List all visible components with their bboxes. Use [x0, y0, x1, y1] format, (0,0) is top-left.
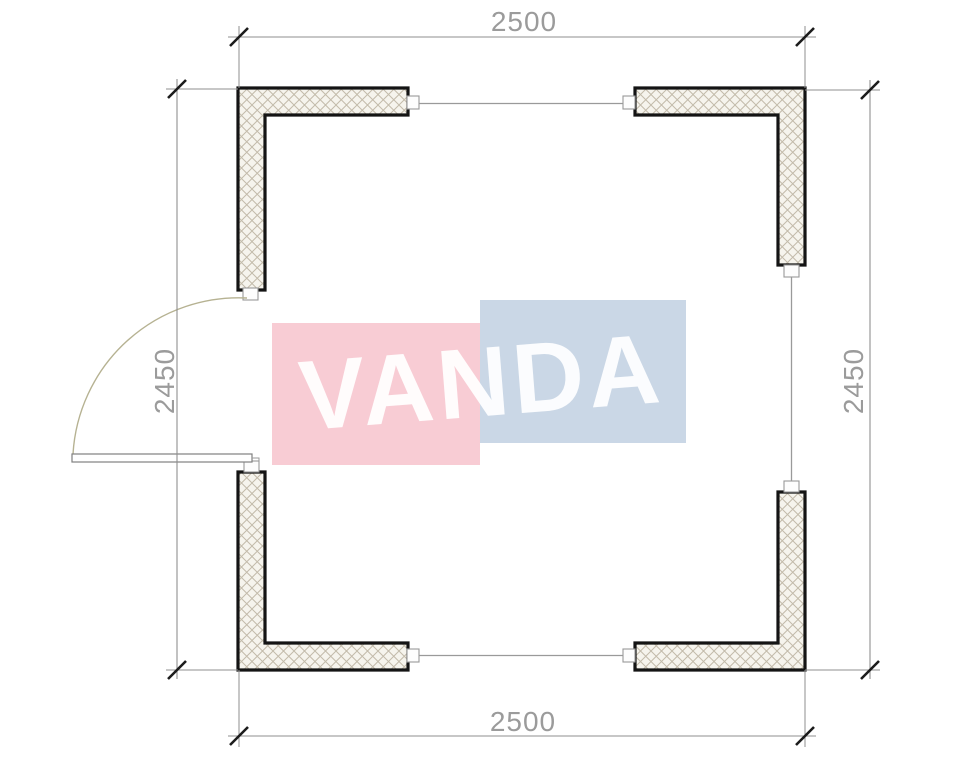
wall-bottom-left [238, 472, 408, 670]
wall-bottom-right [635, 492, 805, 670]
wall-top-right [635, 88, 805, 265]
wall-cap [407, 96, 419, 109]
watermark: VANDA [272, 300, 686, 465]
floor-plan-drawing: VANDA [0, 0, 960, 768]
dimension-label-top: 2500 [491, 6, 557, 37]
wall-cap [244, 461, 259, 472]
dimension-label-right: 2450 [838, 348, 869, 414]
dimension-label-left: 2450 [149, 348, 180, 414]
wall-cap [407, 649, 419, 662]
wall-cap [784, 265, 799, 277]
wall-cap [623, 649, 635, 662]
wall-cap [623, 96, 635, 109]
door-leaf [72, 454, 252, 462]
floor-plan-canvas: VANDA [0, 0, 960, 768]
dimension-label-bottom: 2500 [490, 706, 556, 737]
wall-cap [784, 481, 799, 492]
wall-top-left [238, 88, 408, 290]
